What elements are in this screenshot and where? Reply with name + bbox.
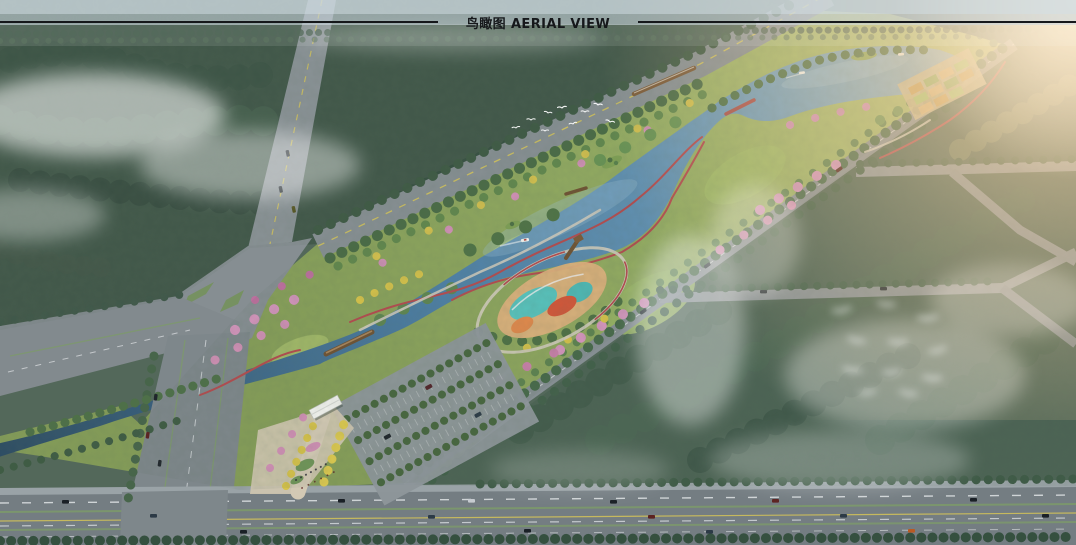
title-line-left bbox=[0, 21, 438, 23]
sun-glow bbox=[560, 0, 1076, 420]
title-bar: 鸟瞰图 AERIAL VIEW bbox=[0, 9, 1076, 35]
title-line-right bbox=[638, 21, 1076, 23]
aerial-rendering bbox=[0, 0, 1076, 545]
aerial-rendering-board: 鸟瞰图 AERIAL VIEW bbox=[0, 0, 1076, 545]
page-title: 鸟瞰图 AERIAL VIEW bbox=[438, 13, 638, 32]
